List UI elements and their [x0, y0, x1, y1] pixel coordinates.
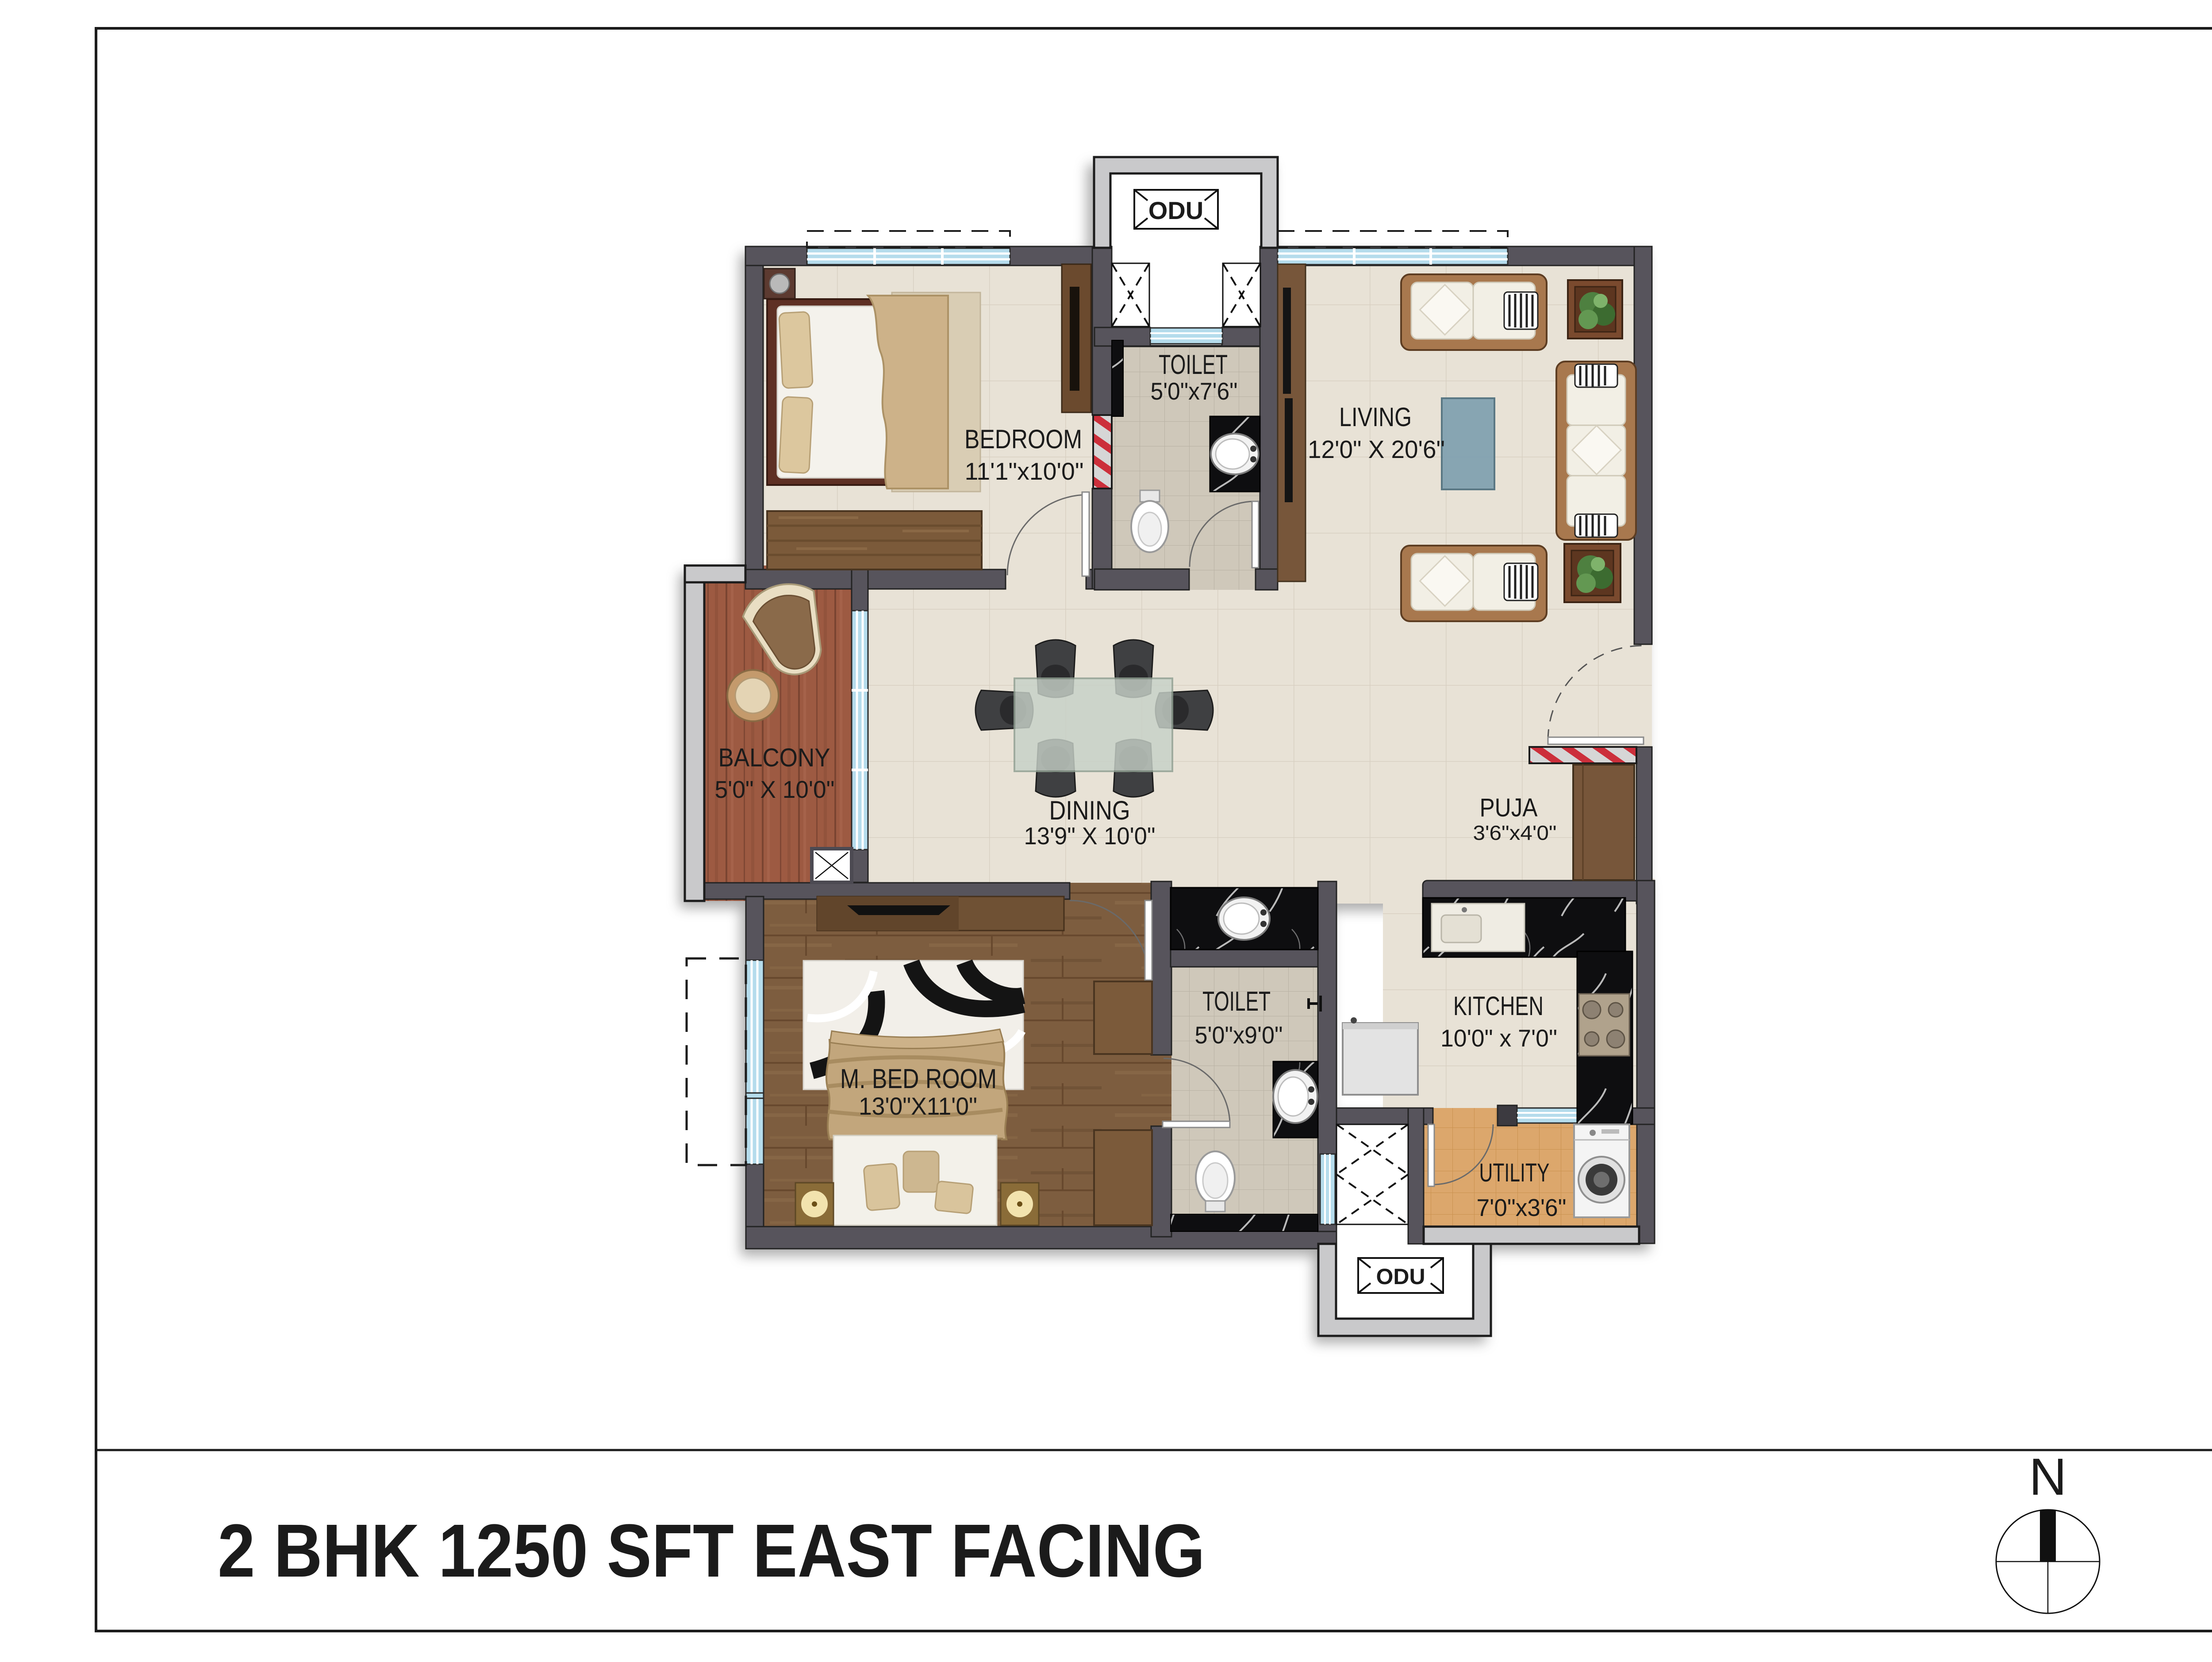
svg-text:2 BHK 1250 SFT EAST FACING: 2 BHK 1250 SFT EAST FACING [218, 1509, 1205, 1593]
svg-text:TOILET: TOILET [1202, 986, 1271, 1017]
svg-text:N: N [2029, 1448, 2066, 1506]
svg-text:13'9" X 10'0": 13'9" X 10'0" [1024, 822, 1156, 850]
svg-text:M. BED ROOM: M. BED ROOM [840, 1064, 997, 1094]
svg-text:3'6"x4'0": 3'6"x4'0" [1473, 821, 1557, 844]
svg-text:12'0" X 20'6": 12'0" X 20'6" [1308, 435, 1445, 464]
svg-text:ODU: ODU [1148, 196, 1203, 224]
svg-text:BALCONY: BALCONY [718, 743, 830, 772]
svg-text:5'0" X 10'0": 5'0" X 10'0" [715, 776, 835, 803]
svg-text:PUJA: PUJA [1480, 793, 1538, 822]
svg-text:13'0"X11'0": 13'0"X11'0" [859, 1092, 977, 1120]
svg-text:LIVING: LIVING [1339, 402, 1412, 432]
svg-text:5'0"x7'6": 5'0"x7'6" [1151, 377, 1238, 405]
svg-text:5'0"x9'0": 5'0"x9'0" [1195, 1021, 1283, 1049]
svg-text:10'0" x 7'0": 10'0" x 7'0" [1440, 1024, 1557, 1052]
svg-text:ODU: ODU [1376, 1264, 1425, 1289]
svg-text:KITCHEN: KITCHEN [1453, 991, 1544, 1021]
svg-text:UTILITY: UTILITY [1479, 1158, 1550, 1187]
svg-text:11'1"x10'0": 11'1"x10'0" [965, 458, 1084, 485]
svg-text:7'0"x3'6": 7'0"x3'6" [1477, 1194, 1567, 1221]
svg-text:BEDROOM: BEDROOM [964, 424, 1082, 454]
svg-text:DINING: DINING [1049, 796, 1130, 825]
svg-text:TOILET: TOILET [1159, 350, 1228, 380]
